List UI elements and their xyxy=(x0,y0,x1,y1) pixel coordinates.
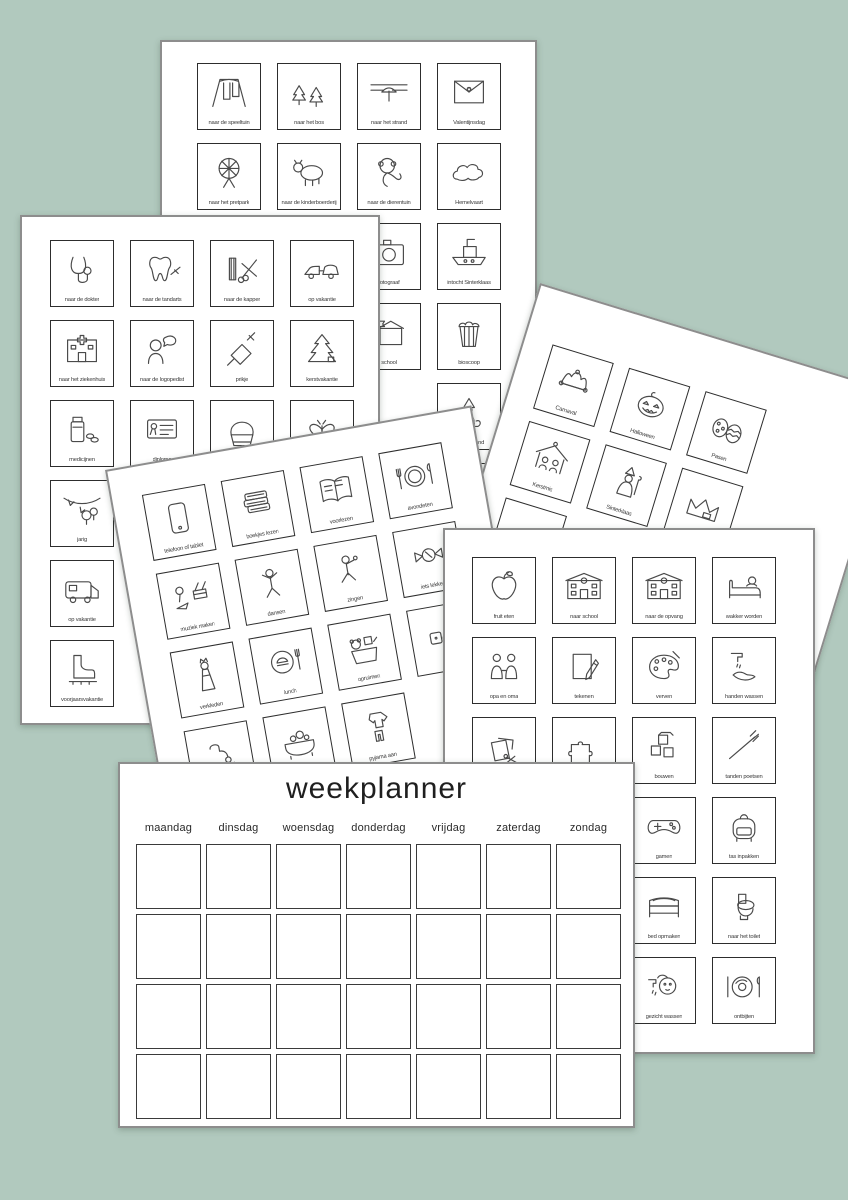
card-label: naar de kapper xyxy=(224,296,260,306)
openbook-icon xyxy=(301,457,372,522)
picture-card: bouwen xyxy=(632,717,696,784)
card-label: Hemelvaart xyxy=(455,199,483,209)
day-header-donderdag: donderdag xyxy=(346,822,411,834)
jester-icon xyxy=(537,346,612,417)
planner-cell xyxy=(206,914,271,979)
medicine-icon xyxy=(51,401,113,456)
card-label: naar de opvang xyxy=(645,613,683,623)
card-label: dansen xyxy=(267,608,286,621)
planner-cell xyxy=(486,844,551,909)
card-label: bed opmaken xyxy=(648,933,681,943)
skate-icon xyxy=(51,641,113,696)
picture-card: tekenen xyxy=(552,637,616,704)
day-header-maandag: maandag xyxy=(136,822,201,834)
card-label: prikje xyxy=(236,376,249,386)
card-label: op vakantie xyxy=(308,296,335,306)
nativity-icon xyxy=(514,422,589,493)
cloud-icon xyxy=(438,144,500,199)
picture-card: Carnaval xyxy=(533,344,614,427)
picture-card: kerstvakantie xyxy=(290,320,354,387)
planner-cell xyxy=(206,1054,271,1119)
planner-cell xyxy=(486,984,551,1049)
pyjama-icon xyxy=(342,694,413,759)
popcorn-icon xyxy=(438,304,500,359)
card-label: voorjaarsvakantie xyxy=(61,696,103,706)
planner-cell xyxy=(346,1054,411,1119)
toilet-icon xyxy=(713,878,775,933)
picture-card: muziek maken xyxy=(156,563,231,640)
card-label: verven xyxy=(656,693,672,703)
picture-card: medicijnen xyxy=(50,400,114,467)
picture-card: fruit eten xyxy=(472,557,536,624)
planner-cell xyxy=(556,984,621,1049)
picture-card: lunch xyxy=(248,628,323,705)
card-label: naar het pretpark xyxy=(209,199,250,209)
picture-card: voorjaarsvakantie xyxy=(50,640,114,707)
facewash-icon xyxy=(633,958,695,1013)
apple-icon xyxy=(473,558,535,613)
card-label: naar de kinderboerderij xyxy=(281,199,336,209)
day-header-dinsdag: dinsdag xyxy=(206,822,271,834)
planner-cell xyxy=(416,984,481,1049)
card-label: opa en oma xyxy=(490,693,519,703)
planner-cell xyxy=(136,1054,201,1119)
card-label: bouwen xyxy=(654,773,673,783)
music-icon xyxy=(157,564,228,629)
picture-card: naar het pretpark xyxy=(197,143,261,210)
toothbrush-icon xyxy=(713,718,775,773)
card-label: naar het strand xyxy=(371,119,407,129)
card-label: kerstvakantie xyxy=(306,376,338,386)
picture-card: gezicht wassen xyxy=(632,957,696,1024)
toybox-icon xyxy=(328,615,399,680)
pumpkin-icon xyxy=(614,369,689,440)
monkey-icon xyxy=(358,144,420,199)
trees-icon xyxy=(278,64,340,119)
card-label: school xyxy=(381,359,397,369)
dancer-icon xyxy=(236,550,307,615)
picture-card: ontbijten xyxy=(712,957,776,1024)
card-label: naar de speeltuin xyxy=(208,119,249,129)
picture-card: gamen xyxy=(632,797,696,864)
picture-card: boekjes lezen xyxy=(221,470,296,547)
card-label: naar de tandarts xyxy=(142,296,181,306)
paperpencil-icon xyxy=(553,638,615,693)
day-header-woensdag: woensdag xyxy=(276,822,341,834)
card-label: Valentijnsdag xyxy=(453,119,485,129)
picture-card: tanden poetsen xyxy=(712,717,776,784)
tooth-icon xyxy=(131,241,193,296)
weekplanner-day-row: maandagdinsdagwoensdagdonderdagvrijdagza… xyxy=(136,822,621,834)
books-icon xyxy=(222,471,293,536)
picture-card: zingen xyxy=(313,535,388,612)
picture-card: Kerstmis xyxy=(510,421,591,504)
party-icon xyxy=(51,481,113,536)
diploma-icon xyxy=(131,401,193,456)
card-label: lunch xyxy=(283,687,297,699)
bed-icon xyxy=(633,878,695,933)
sint2-icon xyxy=(590,446,665,517)
planner-cell xyxy=(276,984,341,1049)
planner-cell xyxy=(346,914,411,979)
singer-icon xyxy=(315,536,386,601)
card-label: naar de dokter xyxy=(65,296,100,306)
planner-cell xyxy=(486,1054,551,1119)
backpack-icon xyxy=(713,798,775,853)
picture-card: naar het ziekenhuis xyxy=(50,320,114,387)
card-label: naar de dierentuin xyxy=(367,199,410,209)
card-label: fruit eten xyxy=(494,613,515,623)
picture-card: op vakantie xyxy=(50,560,114,627)
card-label: naar de logopedist xyxy=(140,376,184,386)
picture-card: opruimen xyxy=(327,614,402,691)
picture-card: Sinterklaas xyxy=(586,444,667,527)
breakfast-icon xyxy=(713,958,775,1013)
planner-cell xyxy=(276,1054,341,1119)
blank-icon xyxy=(764,416,842,495)
picture-card: bioscoop xyxy=(437,303,501,370)
beach-icon xyxy=(358,64,420,119)
picture-card: naar het strand xyxy=(357,63,421,130)
grandparents-icon xyxy=(473,638,535,693)
card-label: tekenen xyxy=(574,693,593,703)
palette-icon xyxy=(633,638,695,693)
planner-cell xyxy=(206,844,271,909)
card-label: medicijnen xyxy=(69,456,95,466)
dressup-icon xyxy=(171,643,242,708)
picture-card: Halloween xyxy=(610,368,691,451)
planner-cell xyxy=(416,844,481,909)
planner-cell xyxy=(556,1054,621,1119)
picture-card: tas inpakken xyxy=(712,797,776,864)
planner-cell xyxy=(136,984,201,1049)
handwash-icon xyxy=(713,638,775,693)
phone-icon xyxy=(143,485,214,550)
weekplanner-title: weekplanner xyxy=(120,772,633,806)
lunch-icon xyxy=(250,629,321,694)
loveletter-icon xyxy=(438,64,500,119)
ferris-icon xyxy=(198,144,260,199)
card-label: naar het toilet xyxy=(728,933,760,943)
card-label: gamen xyxy=(656,853,673,863)
building-icon xyxy=(633,558,695,613)
dinner-icon xyxy=(379,443,450,508)
eggs-icon xyxy=(690,392,765,463)
picture-card: naar de logopedist xyxy=(130,320,194,387)
card-label: bioscoop xyxy=(458,359,480,369)
picture-card: voorlezen xyxy=(299,456,374,533)
planner-cell xyxy=(136,844,201,909)
card-label: wakker worden xyxy=(726,613,762,623)
picture-card: prikje xyxy=(210,320,274,387)
boat-icon xyxy=(438,224,500,279)
card-label: op vakantie xyxy=(68,616,95,626)
picture-card: bed opmaken xyxy=(632,877,696,944)
day-header-zaterdag: zaterdag xyxy=(486,822,551,834)
planner-cell xyxy=(486,914,551,979)
picture-card: avondeten xyxy=(378,442,453,519)
picture-card: naar de dierentuin xyxy=(357,143,421,210)
xmastree-icon xyxy=(291,321,353,376)
picture-card: naar de opvang xyxy=(632,557,696,624)
picture-card: naar de kapper xyxy=(210,240,274,307)
picture-card: op vakantie xyxy=(290,240,354,307)
card-label: naar school xyxy=(570,613,598,623)
picture-card: verkleden xyxy=(170,641,245,718)
picture-card: intocht Sinterklaas xyxy=(437,223,501,290)
card-label: fotograaf xyxy=(378,279,399,289)
planner-cell xyxy=(416,1054,481,1119)
card-label: jarig xyxy=(77,536,87,546)
card-label: naar het bos xyxy=(294,119,324,129)
picture-card: naar het bos xyxy=(277,63,341,130)
picture-card: naar de dokter xyxy=(50,240,114,307)
syringe-icon xyxy=(211,321,273,376)
school-icon xyxy=(553,558,615,613)
planner-cell xyxy=(136,914,201,979)
picture-card: jarig xyxy=(50,480,114,547)
planner-cell xyxy=(346,844,411,909)
planner-cell xyxy=(556,914,621,979)
picture-card xyxy=(763,415,844,498)
weekplanner-grid xyxy=(136,844,621,1119)
cow-icon xyxy=(278,144,340,199)
combscissors-icon xyxy=(211,241,273,296)
card-label: naar het ziekenhuis xyxy=(59,376,105,386)
carcaravan-icon xyxy=(291,241,353,296)
picture-card: telefoon of tablet xyxy=(142,484,217,561)
day-header-vrijdag: vrijdag xyxy=(416,822,481,834)
stethoscope-icon xyxy=(51,241,113,296)
swing-icon xyxy=(198,64,260,119)
planner-cell xyxy=(206,984,271,1049)
planner-cell xyxy=(346,984,411,1049)
picture-card: naar de tandarts xyxy=(130,240,194,307)
card-label: handen wassen xyxy=(725,693,763,703)
card-label: tas inpakken xyxy=(729,853,759,863)
controller-icon xyxy=(633,798,695,853)
picture-card: verven xyxy=(632,637,696,704)
picture-card: naar school xyxy=(552,557,616,624)
card-label: zingen xyxy=(347,594,364,607)
hospital-icon xyxy=(51,321,113,376)
picture-card: naar het toilet xyxy=(712,877,776,944)
card-grid: telefoon of tabletboekjes lezenvoorlezen… xyxy=(142,442,495,797)
picture-card: Pasen xyxy=(686,391,767,474)
picture-card: naar de kinderboerderij xyxy=(277,143,341,210)
camper-icon xyxy=(51,561,113,616)
bedwake-icon xyxy=(713,558,775,613)
weekplanner-sheet: weekplanner maandagdinsdagwoensdagdonder… xyxy=(118,762,635,1128)
picture-card: Hemelvaart xyxy=(437,143,501,210)
card-label: tanden poetsen xyxy=(725,773,762,783)
picture-card: wakker worden xyxy=(712,557,776,624)
card-label: ontbijten xyxy=(734,1013,754,1023)
picture-card: Valentijnsdag xyxy=(437,63,501,130)
planner-cell xyxy=(276,844,341,909)
planner-cell xyxy=(276,914,341,979)
picture-card: dansen xyxy=(235,549,310,626)
planner-cell xyxy=(416,914,481,979)
speech-icon xyxy=(131,321,193,376)
card-label: gezicht wassen xyxy=(646,1013,683,1023)
picture-card: naar de speeltuin xyxy=(197,63,261,130)
planner-cell xyxy=(556,844,621,909)
picture-card: opa en oma xyxy=(472,637,536,704)
card-label: intocht Sinterklaas xyxy=(447,279,491,289)
day-header-zondag: zondag xyxy=(556,822,621,834)
picture-card: handen wassen xyxy=(712,637,776,704)
blocks-icon xyxy=(633,718,695,773)
picture-card: pyjama aan xyxy=(341,692,416,769)
